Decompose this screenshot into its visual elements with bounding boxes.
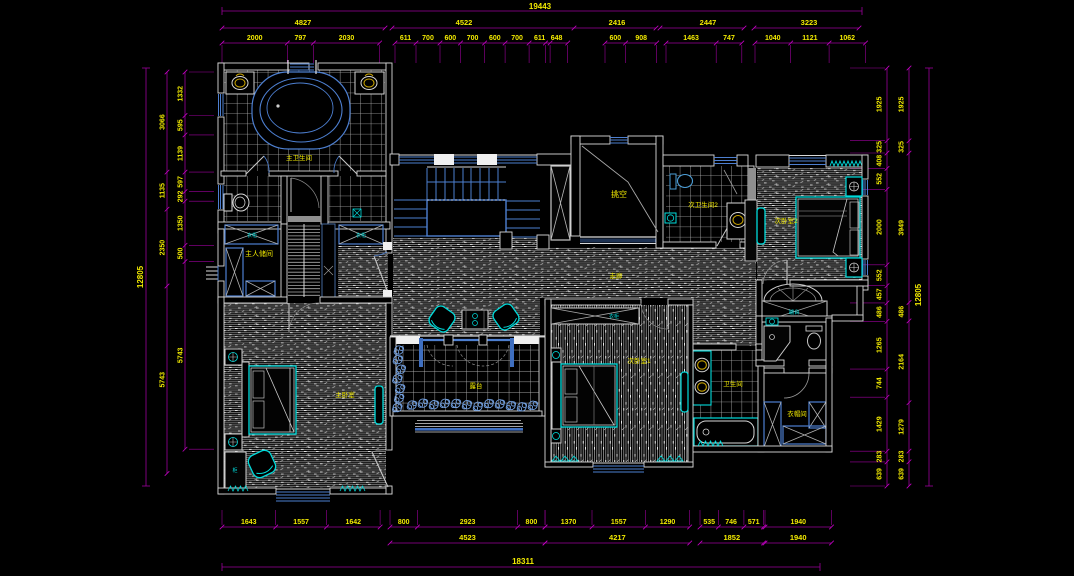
svg-text:1429: 1429 [877, 416, 884, 432]
svg-text:600: 600 [444, 35, 456, 42]
svg-text:1370: 1370 [561, 519, 577, 526]
svg-text:3949: 3949 [898, 220, 905, 236]
svg-text:次卧室2: 次卧室2 [774, 216, 798, 225]
svg-text:1139: 1139 [177, 146, 184, 161]
svg-text:1925: 1925 [898, 97, 905, 113]
svg-text:1135: 1135 [160, 183, 167, 198]
svg-text:1121: 1121 [802, 35, 817, 42]
svg-text:746: 746 [725, 519, 737, 526]
svg-text:1557: 1557 [293, 519, 309, 526]
svg-text:4522: 4522 [456, 18, 473, 27]
svg-text:408: 408 [876, 155, 883, 167]
svg-text:衣帽间: 衣帽间 [787, 409, 807, 418]
svg-text:挑空: 挑空 [611, 189, 627, 199]
svg-text:908: 908 [635, 35, 647, 42]
svg-text:1279: 1279 [898, 419, 905, 435]
svg-text:639: 639 [876, 468, 883, 480]
svg-text:2000: 2000 [876, 219, 883, 235]
svg-text:柜: 柜 [232, 467, 237, 474]
svg-text:2030: 2030 [339, 35, 355, 42]
svg-text:535: 535 [703, 519, 715, 526]
svg-text:主人储间: 主人储间 [245, 249, 273, 258]
svg-text:1852: 1852 [723, 533, 740, 542]
svg-text:500: 500 [177, 247, 184, 259]
svg-text:走廊: 走廊 [610, 271, 624, 280]
svg-text:1332: 1332 [178, 86, 185, 102]
svg-text:1642: 1642 [346, 519, 362, 526]
svg-text:端台: 端台 [788, 308, 800, 316]
svg-text:571: 571 [748, 519, 760, 526]
svg-text:主卧室: 主卧室 [335, 390, 355, 399]
svg-text:2447: 2447 [700, 18, 717, 27]
svg-text:1925: 1925 [877, 96, 884, 112]
svg-text:800: 800 [526, 519, 538, 526]
svg-text:1040: 1040 [765, 35, 781, 42]
svg-text:4217: 4217 [609, 533, 626, 542]
svg-text:4523: 4523 [459, 533, 476, 542]
svg-text:747: 747 [723, 35, 735, 42]
svg-text:卫生间: 卫生间 [723, 379, 743, 388]
svg-text:595: 595 [177, 119, 184, 131]
svg-text:700: 700 [467, 35, 479, 42]
svg-text:797: 797 [294, 35, 306, 42]
svg-text:衣柜: 衣柜 [356, 232, 366, 239]
svg-text:露台: 露台 [470, 381, 483, 390]
svg-text:次卫生间2: 次卫生间2 [688, 200, 718, 209]
svg-text:800: 800 [398, 519, 410, 526]
svg-text:19443: 19443 [529, 2, 552, 11]
svg-text:486: 486 [876, 306, 883, 318]
svg-text:700: 700 [422, 35, 434, 42]
svg-text:597: 597 [178, 176, 185, 188]
svg-text:1557: 1557 [611, 519, 627, 526]
svg-text:1463: 1463 [683, 35, 699, 42]
svg-text:2350: 2350 [160, 240, 167, 256]
svg-text:5743: 5743 [178, 347, 185, 363]
svg-text:700: 700 [511, 35, 523, 42]
svg-text:611: 611 [534, 35, 545, 42]
svg-text:648: 648 [551, 35, 563, 42]
svg-text:次卧室1: 次卧室1 [627, 356, 651, 365]
svg-text:552: 552 [876, 173, 883, 185]
svg-text:744: 744 [876, 377, 883, 389]
svg-text:600: 600 [609, 35, 621, 42]
svg-text:552: 552 [876, 269, 883, 281]
svg-text:325: 325 [877, 141, 884, 153]
svg-text:2923: 2923 [460, 519, 476, 526]
svg-text:主卫生间: 主卫生间 [286, 153, 312, 162]
svg-text:283: 283 [899, 451, 906, 463]
svg-text:18311: 18311 [512, 557, 534, 566]
svg-text:1643: 1643 [241, 519, 257, 526]
svg-text:4827: 4827 [295, 18, 312, 27]
svg-text:1265: 1265 [877, 337, 884, 353]
svg-text:5743: 5743 [159, 372, 166, 388]
svg-text:1350: 1350 [177, 215, 184, 231]
svg-text:283: 283 [876, 451, 883, 463]
svg-text:457: 457 [876, 288, 883, 300]
svg-text:1940: 1940 [791, 519, 807, 526]
svg-text:12805: 12805 [914, 283, 923, 306]
svg-text:3223: 3223 [801, 18, 818, 27]
svg-text:600: 600 [489, 35, 501, 42]
svg-text:12805: 12805 [136, 265, 145, 288]
svg-text:衣柜: 衣柜 [247, 232, 257, 239]
svg-text:611: 611 [400, 35, 411, 42]
svg-text:2164: 2164 [898, 354, 905, 370]
svg-text:292: 292 [177, 190, 184, 202]
svg-text:1940: 1940 [790, 533, 807, 542]
svg-text:1062: 1062 [840, 35, 856, 42]
svg-text:衣柜: 衣柜 [609, 313, 619, 320]
svg-text:639: 639 [898, 468, 905, 480]
svg-text:486: 486 [899, 306, 906, 318]
svg-text:3066: 3066 [160, 114, 167, 130]
svg-text:2000: 2000 [247, 35, 263, 42]
svg-text:325: 325 [899, 141, 906, 153]
svg-text:2416: 2416 [609, 18, 626, 27]
svg-text:1290: 1290 [660, 519, 676, 526]
